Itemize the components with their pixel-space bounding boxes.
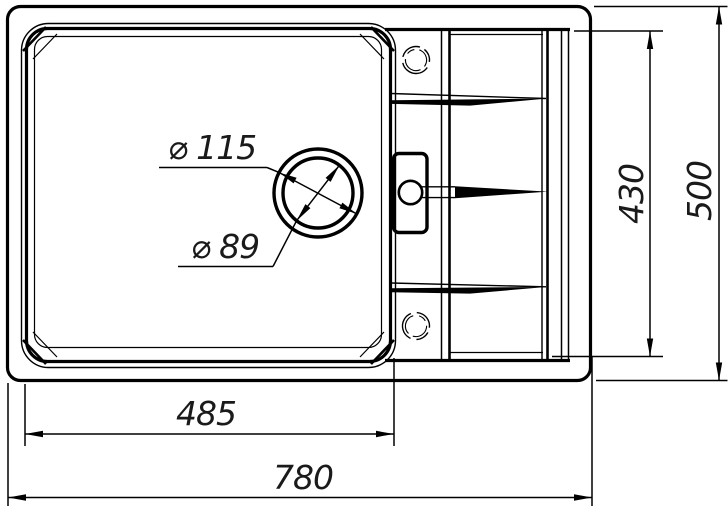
dimension-annotations: ⌀ 115 ⌀ 89 485 780 430 500 [8,7,728,507]
drain-groove-top [391,94,546,106]
faucet-plate [394,154,428,233]
label-overall-depth: 500 [680,161,719,221]
drawing-canvas: ⌀ 115 ⌀ 89 485 780 430 500 [0,0,728,509]
label-basin-width: 485 [176,394,236,433]
dim-drain-outer-diameter [159,168,357,214]
label-drain-inner-diameter: ⌀ 89 [191,227,259,266]
basin-rim-outer-line [22,24,396,368]
drain-groove-bottom [391,283,546,294]
basin-rim-thick-line [27,29,391,362]
basin-corner-chamfers [23,27,394,364]
dimension-labels: ⌀ 115 ⌀ 89 485 780 430 500 [168,128,719,497]
sink-technical-drawing: ⌀ 115 ⌀ 89 485 780 430 500 [0,0,728,509]
basin-bowl [22,24,396,368]
drainboard [385,29,570,361]
label-overall-width: 780 [273,458,333,497]
tap-hole-knockout-top [397,41,435,79]
tap-hole-knockout-bottom [398,308,435,345]
label-drain-outer-diameter: ⌀ 115 [168,128,256,167]
faucet-hole [399,181,422,204]
basin-inner-wall-line [35,37,382,348]
label-inner-depth: 430 [612,164,651,224]
